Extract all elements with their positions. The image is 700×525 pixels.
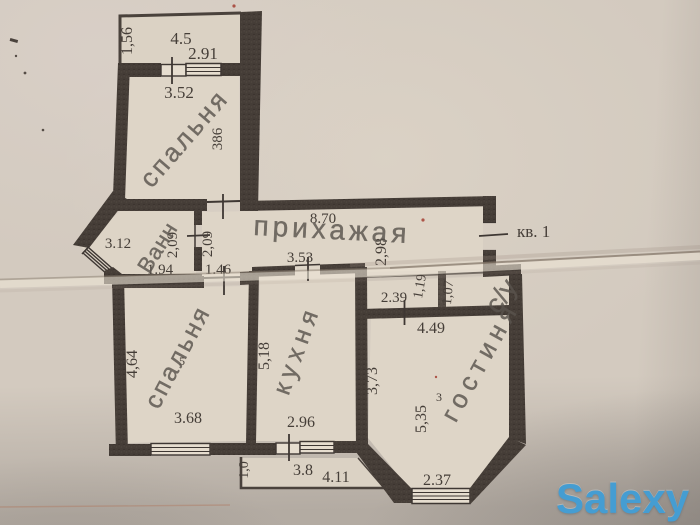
svg-text:2.37: 2.37 — [423, 472, 451, 489]
svg-text:1,56: 1,56 — [119, 27, 136, 55]
svg-text:5,35: 5,35 — [413, 405, 430, 433]
svg-text:1,0: 1,0 — [237, 461, 252, 479]
svg-text:3.8: 3.8 — [293, 462, 313, 479]
svg-text:кв. 1: кв. 1 — [517, 222, 550, 241]
svg-text:2.39: 2.39 — [381, 290, 407, 306]
svg-text:4.49: 4.49 — [417, 320, 445, 337]
svg-text:3.52: 3.52 — [164, 83, 194, 102]
svg-text:5,18: 5,18 — [256, 342, 273, 370]
svg-text:4,64: 4,64 — [124, 350, 141, 378]
svg-text:3.12: 3.12 — [105, 236, 131, 252]
svg-text:386: 386 — [210, 127, 226, 150]
svg-text:3.68: 3.68 — [174, 410, 202, 427]
svg-text:2.96: 2.96 — [287, 414, 315, 431]
svg-text:1,07: 1,07 — [440, 280, 457, 306]
svg-text:3,73: 3,73 — [364, 367, 381, 395]
svg-text:2.91: 2.91 — [188, 44, 218, 63]
svg-text:2,09: 2,09 — [200, 231, 216, 257]
svg-text:3.53: 3.53 — [287, 250, 313, 266]
svg-text:4.11: 4.11 — [322, 469, 349, 486]
